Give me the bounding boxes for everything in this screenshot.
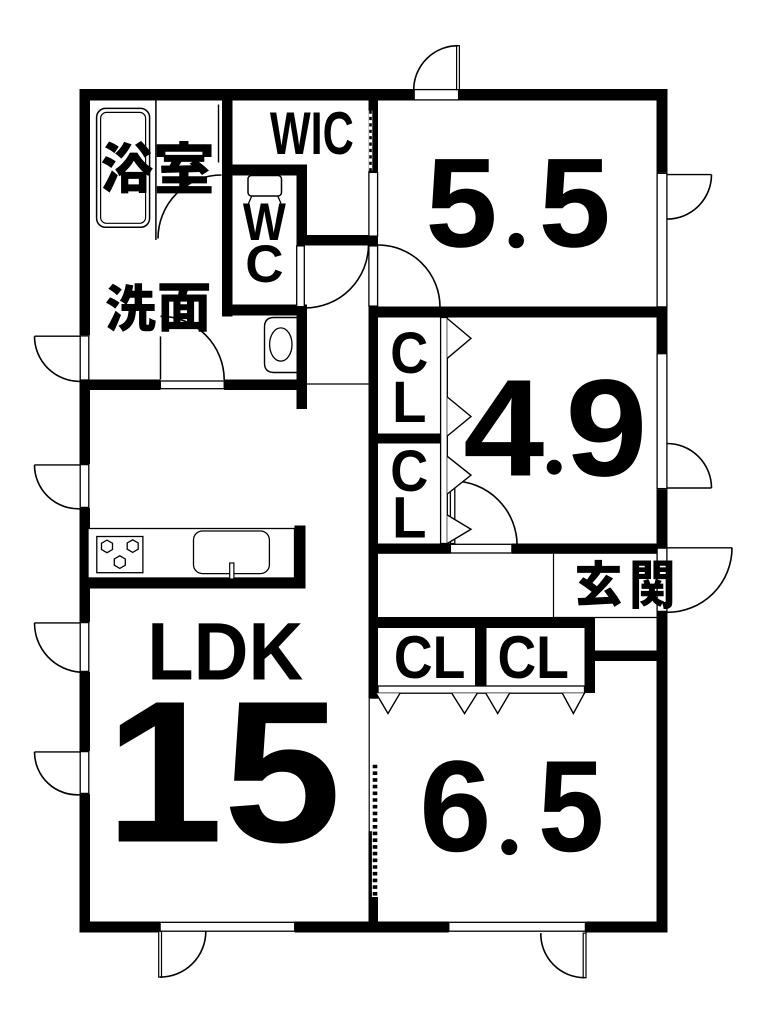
svg-text:CL: CL: [394, 624, 466, 691]
svg-text:5: 5: [539, 132, 611, 274]
svg-text:5: 5: [538, 733, 604, 879]
svg-text:WIC: WIC: [270, 100, 354, 167]
svg-text:L: L: [392, 370, 427, 435]
svg-text:9: 9: [565, 352, 647, 506]
svg-text:15: 15: [105, 659, 341, 885]
svg-text:6: 6: [419, 733, 491, 879]
svg-text:L: L: [392, 486, 427, 551]
svg-text:5: 5: [426, 132, 498, 274]
svg-text:CL: CL: [497, 624, 569, 691]
svg-text:4: 4: [463, 352, 544, 506]
svg-text:C: C: [245, 235, 283, 294]
